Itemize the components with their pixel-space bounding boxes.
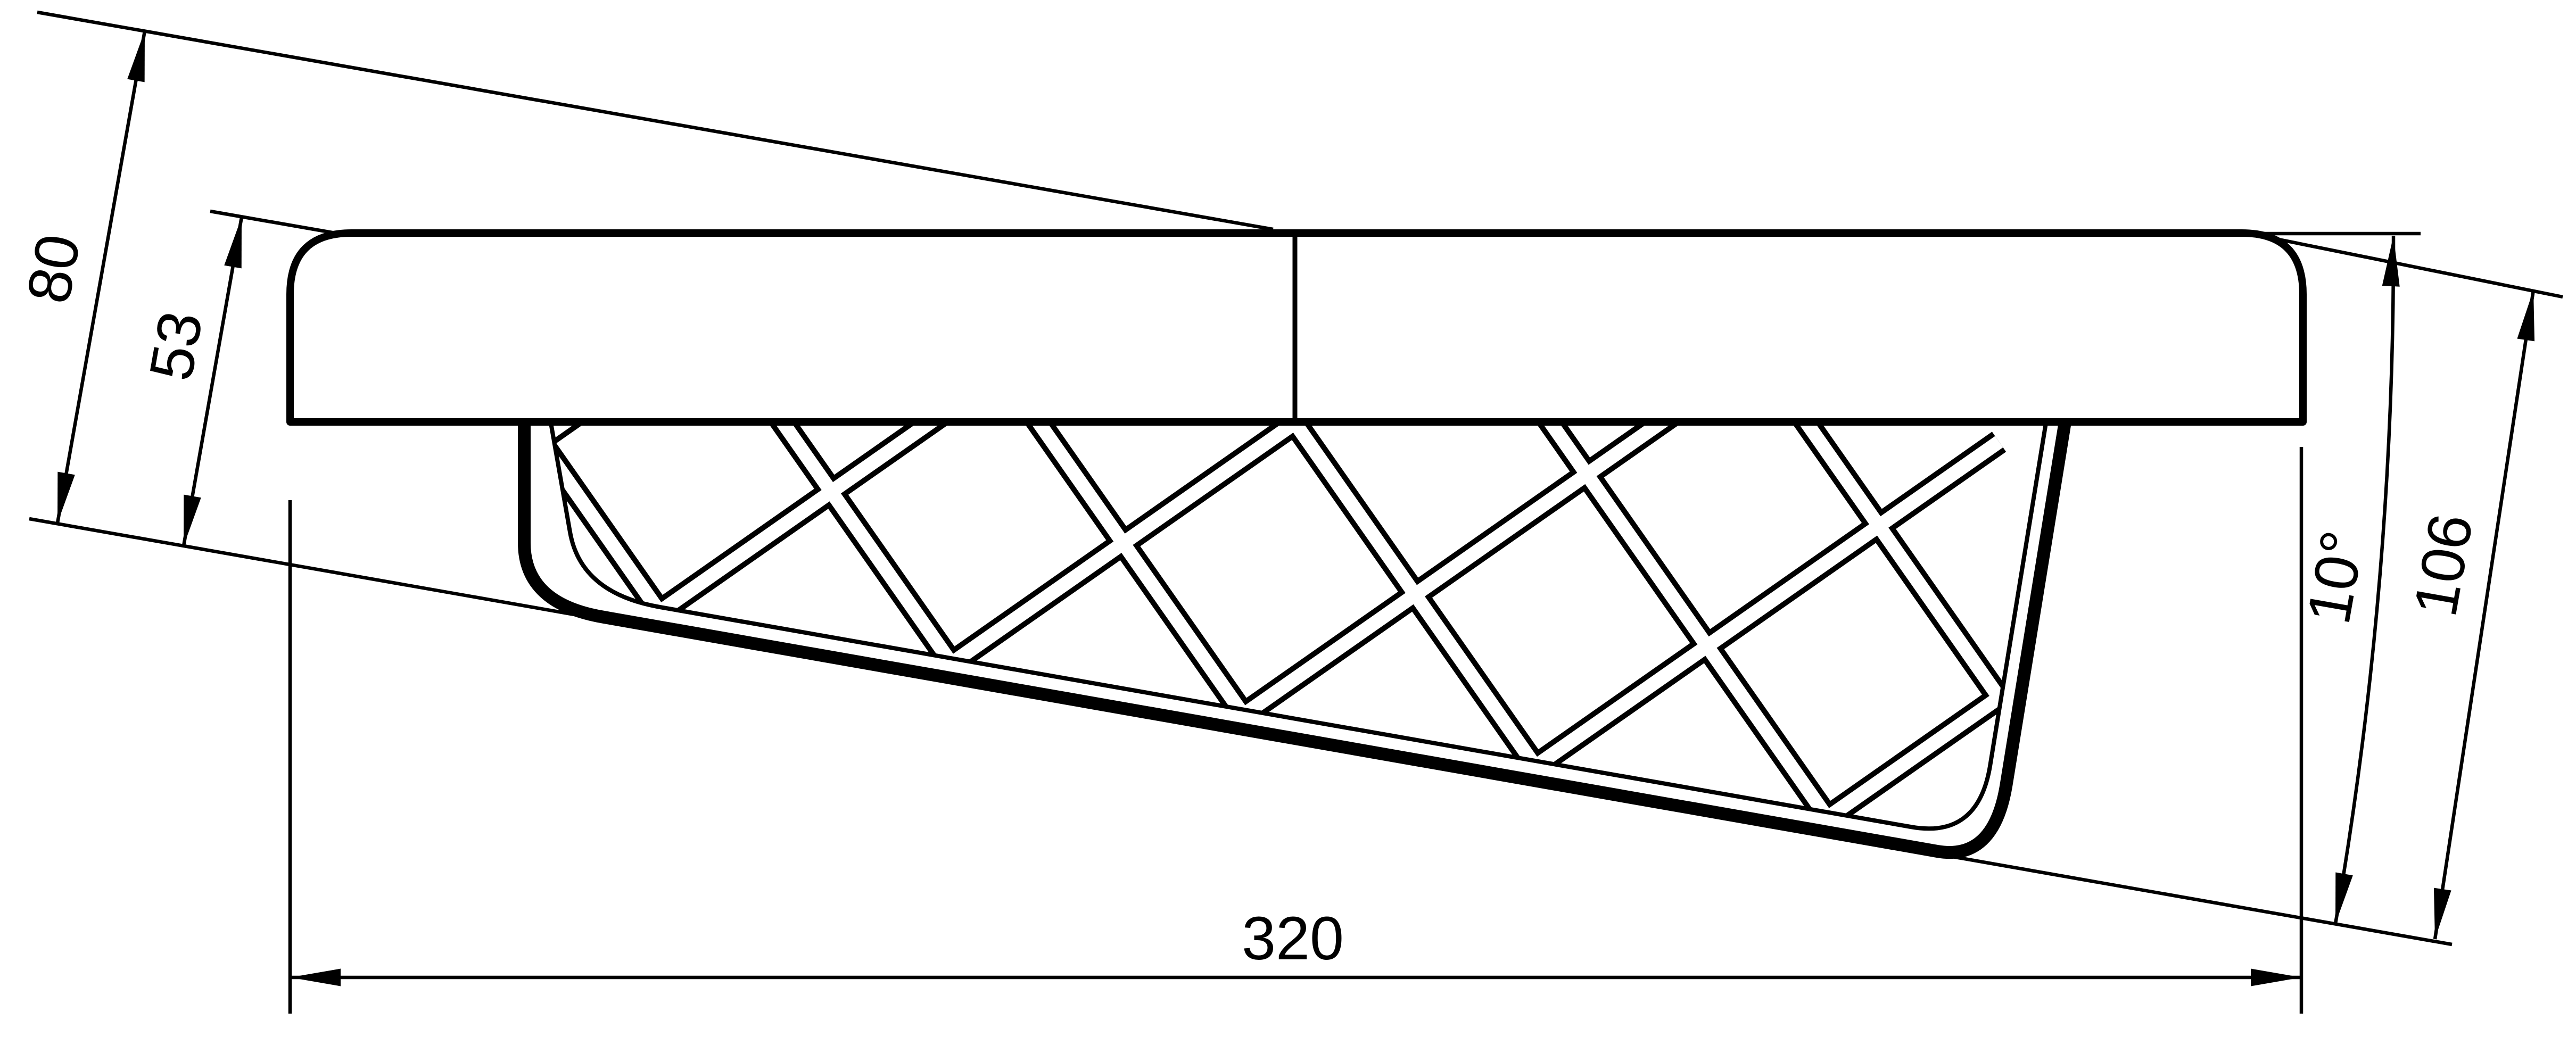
drawing-canvas: 80 53 320 10° 106: [0, 0, 2576, 1045]
mesh-strap: [1652, 406, 2576, 1045]
arrowhead: [2434, 888, 2451, 939]
extension-lines: [29, 12, 2563, 1014]
dimension-lines: [57, 31, 2533, 977]
top-plane-extension-line: [37, 12, 1273, 229]
arrowhead: [290, 969, 341, 986]
basket-outer-wall: [524, 422, 2065, 852]
dimension-arrowheads: [57, 31, 2534, 986]
mesh-strap: [1652, 406, 2576, 1045]
arrowhead: [57, 472, 75, 523]
dim-label-10deg: 10°: [2294, 526, 2377, 628]
arrowhead: [184, 495, 201, 546]
front-corner-plane-line: [210, 211, 335, 233]
arrowhead: [224, 217, 242, 268]
arrowhead: [127, 31, 145, 82]
dim-label-106: 106: [2401, 509, 2486, 621]
basket-inner-wall: [551, 423, 2046, 828]
dim-label-320: 320: [1242, 905, 1344, 973]
arrowhead: [2335, 873, 2353, 924]
arrowhead: [2517, 290, 2534, 341]
dim-label-53: 53: [137, 306, 216, 385]
technical-drawing: 80 53 320 10° 106: [0, 0, 2576, 1045]
dim-label-80: 80: [14, 229, 93, 308]
arrowhead: [2251, 969, 2301, 986]
